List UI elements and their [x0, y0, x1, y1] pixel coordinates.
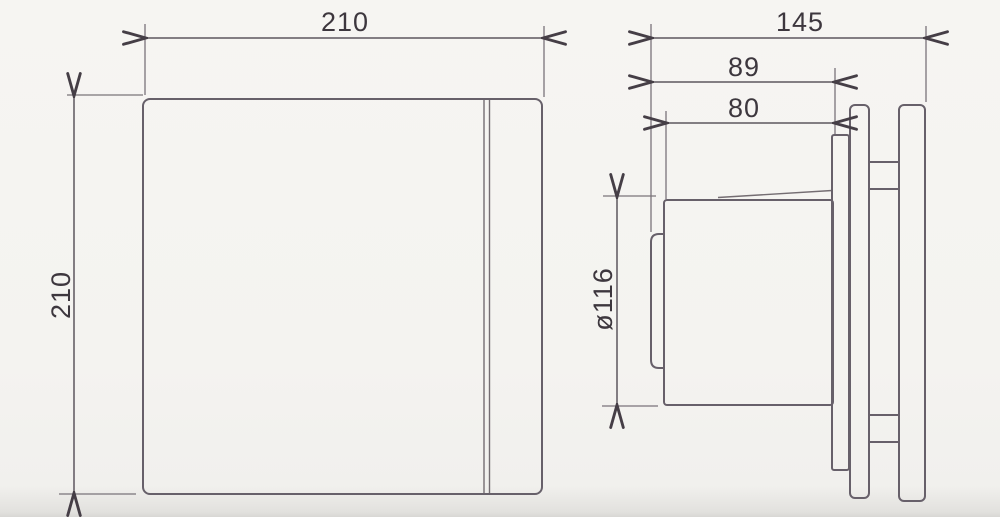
duct-spigot-body	[664, 200, 833, 405]
dim-body-depth-label: 89	[728, 52, 760, 82]
dim-spigot-depth-label: 80	[728, 93, 760, 123]
dim-side-overall-depth: 145	[651, 7, 926, 232]
technical-drawing-page: 210 210	[0, 0, 1000, 517]
inner-panel-plate	[850, 105, 869, 498]
front-view: 210 210	[46, 7, 544, 494]
mounting-flange-plate	[832, 135, 849, 470]
dim-front-width: 210	[145, 7, 544, 97]
front-panel-outline	[143, 99, 542, 494]
dim-front-height-label: 210	[46, 271, 76, 319]
dim-overall-depth-label: 145	[776, 7, 824, 37]
fan-dimension-drawing: 210 210	[0, 0, 1000, 517]
dim-side-duct-diameter: ø116	[588, 196, 658, 406]
dim-front-width-label: 210	[321, 7, 369, 37]
outer-front-cover	[899, 105, 925, 501]
side-view: 145 89 80 ø116	[588, 7, 926, 501]
dim-side-spigot-depth: 80	[666, 93, 834, 199]
spigot-rear-tab	[651, 234, 664, 368]
dim-duct-diameter-label: ø116	[588, 267, 618, 331]
dim-front-height: 210	[46, 95, 143, 494]
shutter-flap-line	[718, 191, 832, 198]
